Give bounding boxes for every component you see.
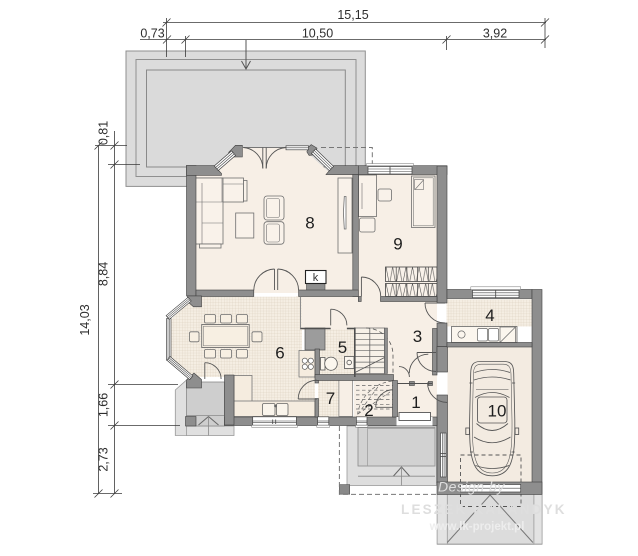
svg-text:3,92: 3,92 xyxy=(483,27,507,41)
svg-text:5: 5 xyxy=(338,338,347,357)
svg-text:15,15: 15,15 xyxy=(337,8,368,22)
svg-text:www.lk-projekt.pl: www.lk-projekt.pl xyxy=(429,521,525,533)
svg-text:0,81: 0,81 xyxy=(97,121,111,145)
svg-text:3: 3 xyxy=(413,327,422,346)
svg-text:1: 1 xyxy=(411,393,420,412)
svg-text:7: 7 xyxy=(326,389,335,408)
svg-text:8: 8 xyxy=(305,214,314,233)
svg-text:14,03: 14,03 xyxy=(78,304,92,335)
svg-text:0,73: 0,73 xyxy=(140,26,164,40)
svg-text:10: 10 xyxy=(488,402,507,421)
svg-text:8,84: 8,84 xyxy=(97,262,111,286)
svg-text:4: 4 xyxy=(485,306,494,325)
svg-text:10,50: 10,50 xyxy=(302,27,333,41)
svg-text:Design by: Design by xyxy=(438,479,505,495)
svg-text:LESZEK KALANDYK: LESZEK KALANDYK xyxy=(401,502,567,517)
svg-text:2,73: 2,73 xyxy=(97,447,111,471)
svg-text:2: 2 xyxy=(364,401,373,420)
svg-text:1,66: 1,66 xyxy=(97,393,111,417)
svg-text:9: 9 xyxy=(393,235,402,254)
svg-text:k: k xyxy=(313,272,319,284)
svg-text:6: 6 xyxy=(275,344,284,363)
